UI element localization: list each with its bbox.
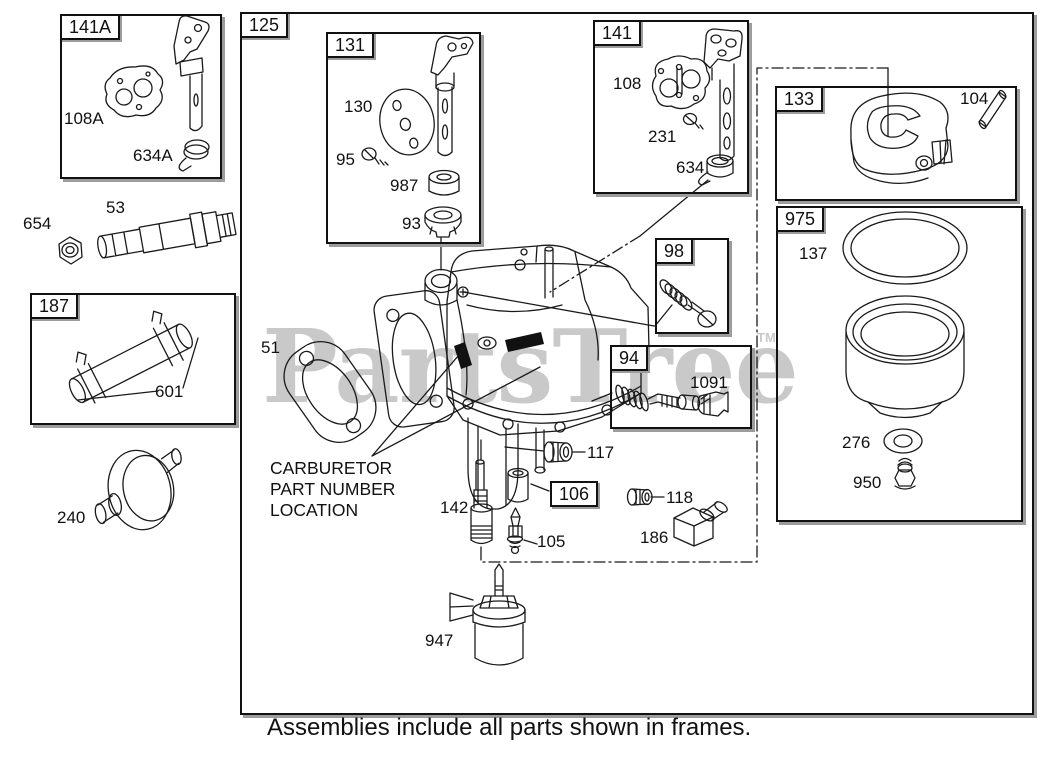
frame-label-94: 94: [610, 345, 648, 371]
diagram-caption: Assemblies include all parts shown in fr…: [267, 714, 751, 742]
frame-label-141A: 141A: [60, 14, 120, 40]
part-label-1091: 1091: [690, 374, 728, 392]
part-label-51: 51: [261, 339, 280, 357]
drawing-part-240: [84, 441, 194, 539]
part-label-950: 950: [853, 474, 881, 492]
part-label-130: 130: [344, 98, 372, 116]
drawing-part-654: [59, 237, 82, 264]
part-label-118: 118: [666, 489, 693, 507]
note-line-3: LOCATION: [270, 500, 395, 521]
frame-141: 141: [593, 20, 749, 194]
part-label-186: 186: [640, 529, 668, 547]
part-label-104: 104: [960, 90, 988, 108]
part-label-987: 987: [390, 177, 418, 195]
frame-label-98: 98: [655, 238, 693, 264]
part-label-601: 601: [155, 383, 183, 401]
part-label-240: 240: [57, 509, 85, 527]
frame-94: 94: [610, 345, 752, 429]
part-label-947: 947: [425, 632, 453, 650]
part-label-231: 231: [648, 128, 676, 146]
part-label-137: 137: [799, 245, 827, 263]
note-line-1: CARBURETOR: [270, 458, 395, 479]
frame-label-187: 187: [30, 293, 78, 319]
frame-label-975: 975: [776, 206, 824, 232]
part-label-142: 142: [440, 499, 468, 517]
part-label-654: 654: [23, 215, 51, 233]
part-number-location-note: CARBURETOR PART NUMBER LOCATION: [270, 458, 395, 521]
frame-label-133: 133: [775, 86, 823, 112]
part-label-276: 276: [842, 434, 870, 452]
note-line-2: PART NUMBER: [270, 479, 395, 500]
frame-label-106: 106: [550, 481, 598, 507]
frame-98: 98: [655, 238, 729, 334]
part-label-93: 93: [402, 215, 421, 233]
parts-diagram-canvas: PartsTree TM: [0, 0, 1051, 757]
part-label-108: 108: [613, 75, 641, 93]
frame-187: 187: [30, 293, 236, 425]
part-label-108A: 108A: [64, 110, 104, 128]
part-label-117: 117: [587, 444, 614, 462]
frame-label-125: 125: [240, 12, 288, 38]
frame-131: 131: [326, 32, 481, 244]
frame-label-141: 141: [593, 20, 641, 46]
part-label-105: 105: [537, 533, 565, 551]
part-label-634: 634: [676, 159, 704, 177]
part-label-53: 53: [106, 199, 125, 217]
part-label-95: 95: [336, 151, 355, 169]
part-label-634A: 634A: [133, 147, 173, 165]
frame-label-131: 131: [326, 32, 374, 58]
